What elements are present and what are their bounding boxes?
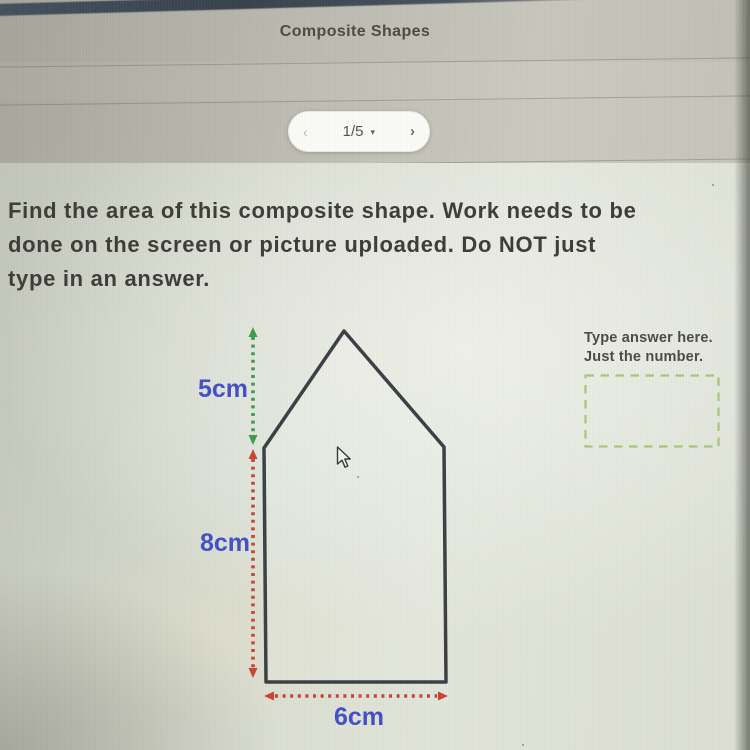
pentagon-outline xyxy=(264,331,446,682)
mouse-cursor-icon xyxy=(336,446,354,475)
quiz-screen: Composite Shapes ‹ 1/5 ▾ › Find the area… xyxy=(0,0,750,750)
chevron-down-icon: ▾ xyxy=(371,125,376,138)
question-line: type in an answer. xyxy=(8,262,637,296)
answer-input-box[interactable] xyxy=(584,374,720,448)
arrow-up-icon xyxy=(249,327,258,337)
triangle-height-label: 5cm xyxy=(198,375,248,403)
dust-speck xyxy=(357,476,359,478)
dust-speck xyxy=(712,184,714,186)
next-page-button[interactable]: › xyxy=(410,123,415,140)
page-navigator[interactable]: ‹ 1/5 ▾ › xyxy=(288,111,430,152)
answer-instruction: Type answer here. xyxy=(584,329,734,348)
base-width-label: 6cm xyxy=(334,703,384,730)
page-select-dropdown[interactable]: 1/5 ▾ xyxy=(343,123,375,140)
arrow-down-icon xyxy=(249,668,258,678)
toolbar-band xyxy=(0,62,750,100)
answer-box-border xyxy=(586,376,719,447)
dust-speck xyxy=(522,744,524,746)
arrow-right-icon xyxy=(438,692,448,701)
page-title: Composite Shapes xyxy=(0,23,710,41)
answer-instruction: Just the number. xyxy=(584,348,734,367)
composite-shape-figure: 5cm 8cm 6cm xyxy=(180,310,470,730)
arrow-left-icon xyxy=(264,692,274,701)
arrow-up-icon xyxy=(249,449,258,459)
question-line: done on the screen or picture uploaded. … xyxy=(8,228,637,262)
rectangle-height-label: 8cm xyxy=(200,529,250,557)
answer-panel: Type answer here. Just the number. xyxy=(584,329,734,448)
question-line: Find the area of this composite shape. W… xyxy=(8,194,637,228)
arrow-down-icon xyxy=(249,435,258,445)
page-indicator: 1/5 xyxy=(343,123,364,140)
previous-page-button[interactable]: ‹ xyxy=(303,124,308,140)
question-text: Find the area of this composite shape. W… xyxy=(8,194,637,296)
